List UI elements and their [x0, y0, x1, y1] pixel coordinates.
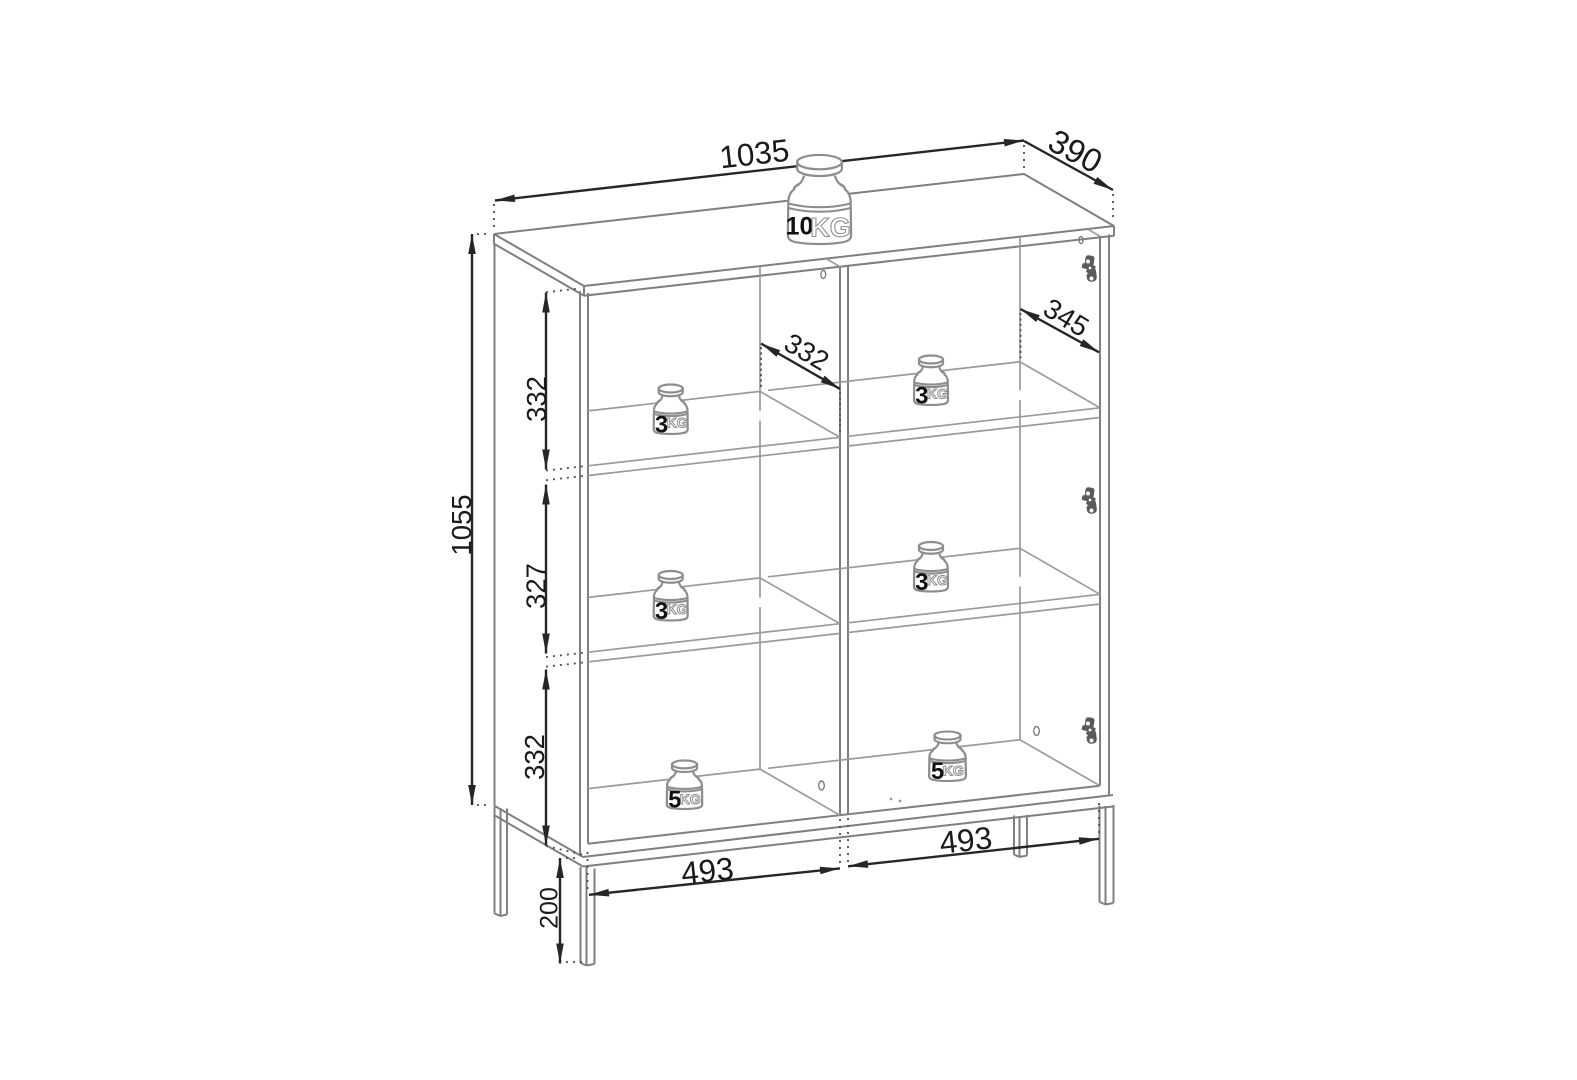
svg-text:10: 10	[786, 213, 814, 241]
svg-text:332: 332	[519, 734, 550, 780]
svg-text:KG: KG	[927, 572, 948, 588]
svg-text:493: 493	[679, 850, 735, 891]
svg-text:KG: KG	[943, 763, 964, 779]
svg-text:KG: KG	[927, 386, 948, 402]
svg-text:327: 327	[521, 563, 552, 609]
svg-text:1055: 1055	[446, 494, 477, 555]
svg-text:KG: KG	[810, 213, 851, 243]
svg-text:493: 493	[938, 819, 994, 861]
svg-text:200: 200	[536, 887, 564, 929]
svg-text:KG: KG	[680, 791, 701, 807]
svg-text:332: 332	[521, 376, 552, 422]
svg-text:KG: KG	[667, 415, 688, 431]
svg-text:KG: KG	[667, 601, 688, 617]
